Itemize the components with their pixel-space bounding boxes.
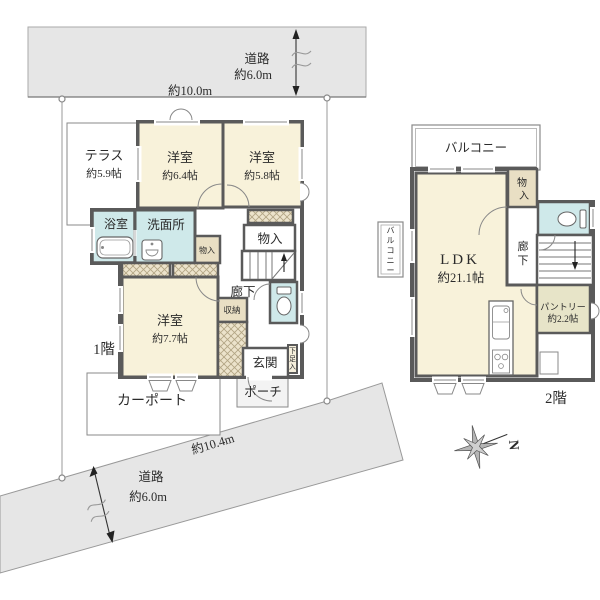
compass: N	[451, 420, 521, 473]
balcony-side-char: バ	[387, 226, 395, 235]
top-road-width: 約6.0m	[234, 67, 272, 82]
floor2-label: 2階	[545, 390, 567, 407]
pantry-label: パントリー	[540, 302, 585, 312]
compass-north-label: N	[505, 439, 521, 450]
toilet-1f-icon	[277, 287, 291, 315]
bottom-road-label: 道路	[138, 469, 164, 484]
hall-2f-char: 下	[518, 255, 529, 267]
closet-hatch-strip	[248, 210, 293, 223]
floor1-label: 1階	[93, 341, 115, 358]
closet-hatch-strip	[122, 263, 170, 277]
closet-small-label: 物入	[199, 245, 215, 255]
bath-label: 浴室	[104, 216, 128, 231]
shoe-closet-char: 入	[289, 363, 296, 371]
kitchen-counter-icon	[489, 301, 513, 375]
terrace-label: テラス	[85, 148, 124, 163]
terrace-size: 約5.9帖	[86, 166, 122, 180]
closet-hatch-strip	[173, 263, 218, 277]
ldk-size: 約21.1帖	[438, 270, 485, 285]
washbasin-icon	[142, 240, 162, 260]
balcony-side-char: コ	[387, 246, 395, 255]
compass-star-inner	[455, 426, 497, 468]
pantry-size: 約2.2帖	[548, 313, 579, 325]
floor2-plan	[378, 125, 599, 394]
bedroom2-size: 約5.8帖	[244, 168, 280, 182]
appliance-space	[540, 352, 558, 374]
porch-label: ポーチ	[244, 385, 282, 399]
bottom-road-width: 約6.0m	[129, 489, 167, 504]
closet-1f-label: 物入	[257, 232, 283, 246]
boundary-marker	[59, 96, 65, 102]
carport-label: カーポート	[117, 393, 187, 409]
hall-1f-label: 廊下	[230, 284, 255, 299]
boundary-marker	[324, 95, 330, 101]
bedroom1-label: 洋室	[167, 150, 193, 165]
closet-2f-char: 入	[519, 191, 529, 202]
bedroom3-label: 洋室	[157, 313, 183, 328]
top-frontage: 約10.0m	[168, 83, 212, 98]
toilet-2f-icon	[558, 210, 586, 228]
shoe-closet-char: 足	[289, 355, 296, 363]
balcony-top-label: バルコニー	[445, 141, 507, 155]
bathtub-icon	[97, 237, 133, 258]
floorplan-drawing: 道路 約6.0m 約10.0m 道路 約6.0m 約10.4m	[0, 0, 600, 600]
entrance-label: 玄関	[252, 355, 277, 370]
washroom-label: 洗面所	[147, 218, 185, 232]
floorplan-page: 道路 約6.0m 約10.0m 道路 約6.0m 約10.4m	[0, 0, 600, 600]
top-road-label: 道路	[244, 51, 270, 66]
shoe-closet-char: 下	[289, 347, 296, 355]
balcony-side-char: ル	[387, 236, 395, 245]
bedroom1-room	[138, 122, 223, 208]
bedroom2-label: 洋室	[249, 150, 275, 165]
boundary-marker	[324, 398, 330, 404]
boundary-marker	[59, 475, 65, 481]
bedroom3-size: 約7.7帖	[152, 331, 188, 345]
balcony-side-char: ニ	[387, 256, 395, 265]
storage-label: 収納	[223, 305, 240, 315]
closet-2f-char: 物	[517, 176, 527, 189]
balcony-side-char: ー	[387, 266, 395, 275]
bedroom1-size: 約6.4帖	[162, 168, 198, 182]
hall-2f-char: 廊	[518, 239, 529, 253]
ldk-label: LDK	[440, 252, 480, 268]
